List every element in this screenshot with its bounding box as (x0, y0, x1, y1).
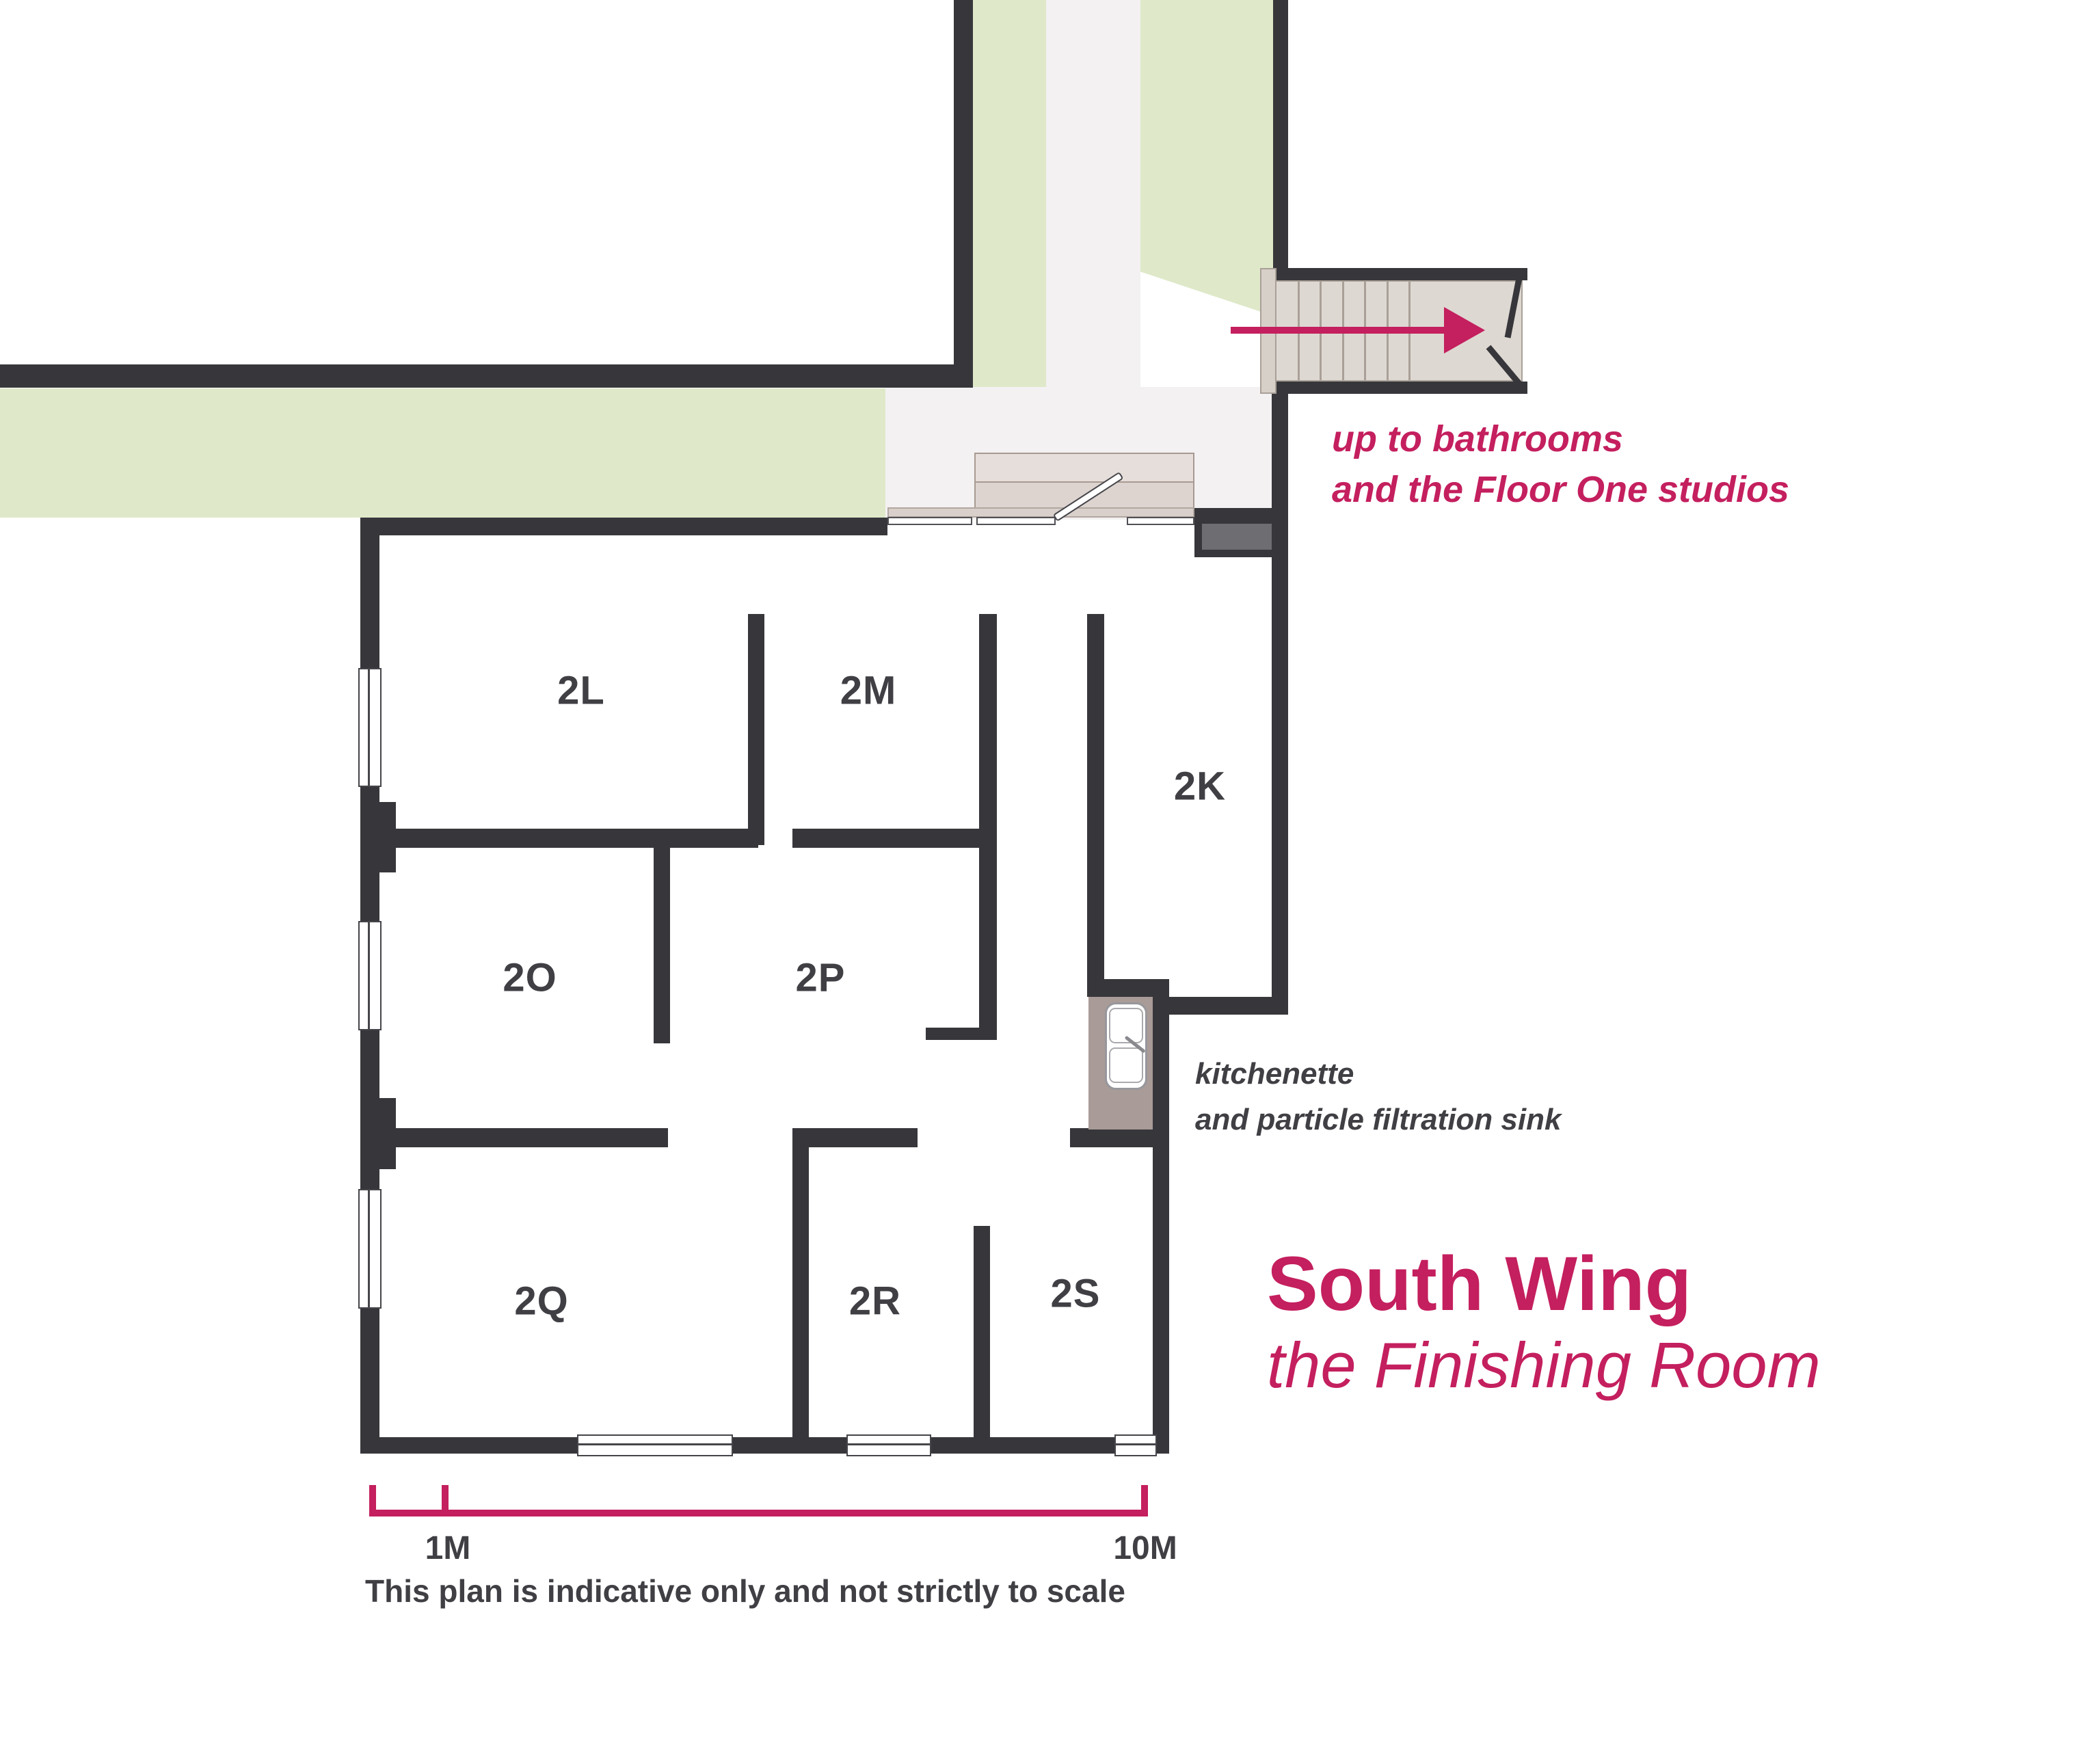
wall (1273, 0, 1288, 268)
disclaimer-text: This plan is indicative only and not str… (365, 1573, 1125, 1609)
green-verge-corridor-right (1140, 0, 1273, 316)
wall (0, 364, 973, 388)
window-symbol (577, 1434, 733, 1456)
wall (1087, 979, 1169, 997)
wall (974, 1226, 990, 1454)
page-subtitle: the Finishing Room (1267, 1333, 1821, 1398)
scale-label-end: 10M (1113, 1529, 1177, 1567)
duct-shaft (1202, 524, 1274, 550)
stair-note-line1: up to bathrooms (1332, 414, 1789, 464)
window-symbol (358, 668, 382, 787)
kitchenette-note: kitchenette and particle filtration sink (1195, 1051, 1561, 1142)
wall (360, 1437, 1169, 1454)
wall (748, 614, 764, 845)
sliding-door-track (1127, 517, 1194, 525)
green-verge-band (0, 388, 885, 518)
wall (1272, 394, 1288, 1015)
wall (1087, 614, 1104, 979)
room-label-2l: 2L (557, 668, 605, 714)
kitchenette-note-line2: and particle filtration sink (1195, 1097, 1561, 1142)
scale-bar (369, 1510, 1148, 1516)
wall (360, 518, 887, 535)
stair-note: up to bathrooms and the Floor One studio… (1332, 414, 1789, 515)
floor-plan-canvas: 2L 2M 2K 2O 2P 2Q 2R 2S up to bathrooms … (0, 0, 2099, 1764)
room-label-2k: 2K (1174, 764, 1226, 810)
sliding-door-track (976, 517, 1056, 525)
window-symbol (846, 1434, 931, 1456)
room-label-2m: 2M (840, 668, 897, 714)
direction-arrow-head-icon (1444, 307, 1485, 353)
scale-label-start: 1M (425, 1529, 471, 1567)
sliding-door-track (887, 517, 972, 525)
wall (1153, 979, 1169, 1454)
wall (793, 1128, 918, 1147)
wall (954, 0, 973, 388)
wall (654, 848, 670, 1043)
window-symbol (358, 1189, 382, 1309)
wall (792, 1128, 809, 1454)
wall (384, 829, 758, 848)
corridor-floor (1046, 0, 1140, 387)
room-label-2p: 2P (796, 955, 846, 1001)
wall (1162, 997, 1288, 1015)
wall (979, 614, 997, 1040)
entrance-sill (887, 507, 1194, 518)
room-label-2o: 2O (503, 955, 557, 1001)
sink-basin (1109, 1047, 1143, 1083)
window-symbol (1114, 1434, 1157, 1456)
stair-note-line2: and the Floor One studios (1332, 464, 1789, 515)
vestibule-mat-upper (974, 453, 1194, 483)
stair-wall-top (1273, 268, 1527, 280)
page-title: South Wing (1267, 1246, 1692, 1322)
room-label-2q: 2Q (514, 1279, 568, 1324)
room-label-2r: 2R (849, 1279, 901, 1324)
wall (926, 1028, 997, 1040)
wall (792, 829, 997, 848)
green-verge-corridor-left (973, 0, 1046, 387)
direction-arrow-icon (1231, 327, 1445, 334)
room-label-2s: 2S (1051, 1271, 1101, 1317)
stair-wall-bottom (1273, 382, 1527, 394)
wall (1070, 1128, 1169, 1147)
kitchenette-note-line1: kitchenette (1195, 1051, 1561, 1097)
wall (384, 1128, 668, 1147)
window-symbol (358, 921, 382, 1030)
